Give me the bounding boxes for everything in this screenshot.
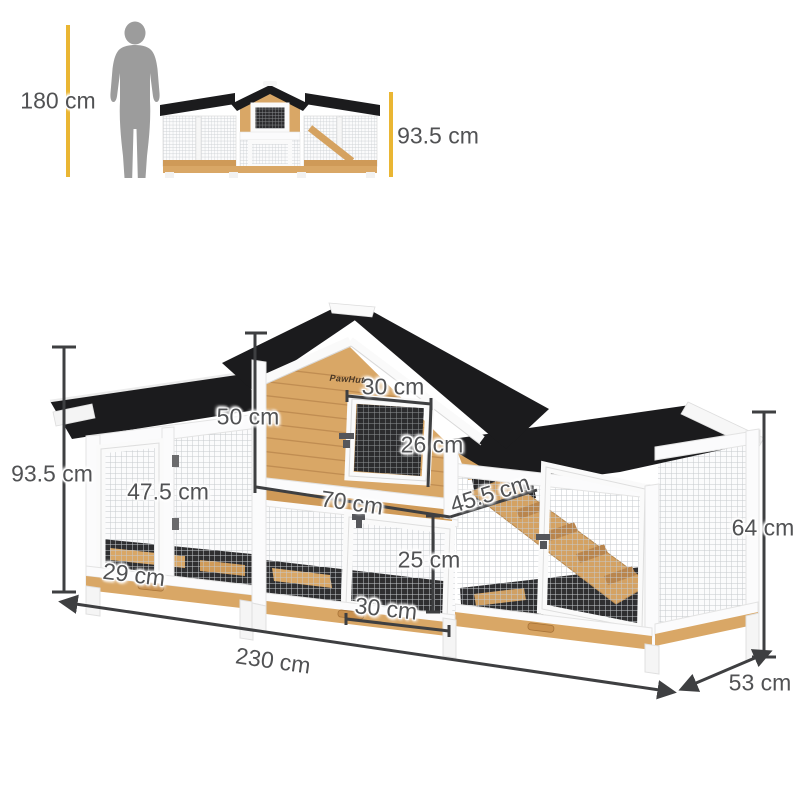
person-silhouette-icon <box>110 22 159 179</box>
dim-label-front-height: 93.5 cm <box>397 123 479 150</box>
product-dimension-diagram: 180 cm 93.5 cm 50 cm 30 cm 26 cm 70 cm 4… <box>0 0 800 800</box>
dim-label-left-door-height: 47.5 cm <box>127 479 209 506</box>
dim-label-run-side-height: 64 cm <box>732 515 795 542</box>
right-run <box>438 402 764 674</box>
dim-label-person-height: 180 cm <box>20 88 95 115</box>
hinge-icon <box>172 518 179 530</box>
dim-label-window-width: 30 cm <box>362 374 425 401</box>
dim-label-window-height: 26 cm <box>401 432 464 459</box>
hinge-icon <box>172 455 179 467</box>
dim-label-overall-height: 93.5 cm <box>11 461 93 488</box>
latch-icon <box>339 433 354 439</box>
front-view-thumbnail <box>160 81 380 178</box>
dim-label-house-front-height: 50 cm <box>217 404 280 431</box>
latch-icon <box>536 534 550 540</box>
dim-label-overall-depth: 53 cm <box>729 670 792 697</box>
dim-label-lower-door-height: 25 cm <box>398 547 461 574</box>
